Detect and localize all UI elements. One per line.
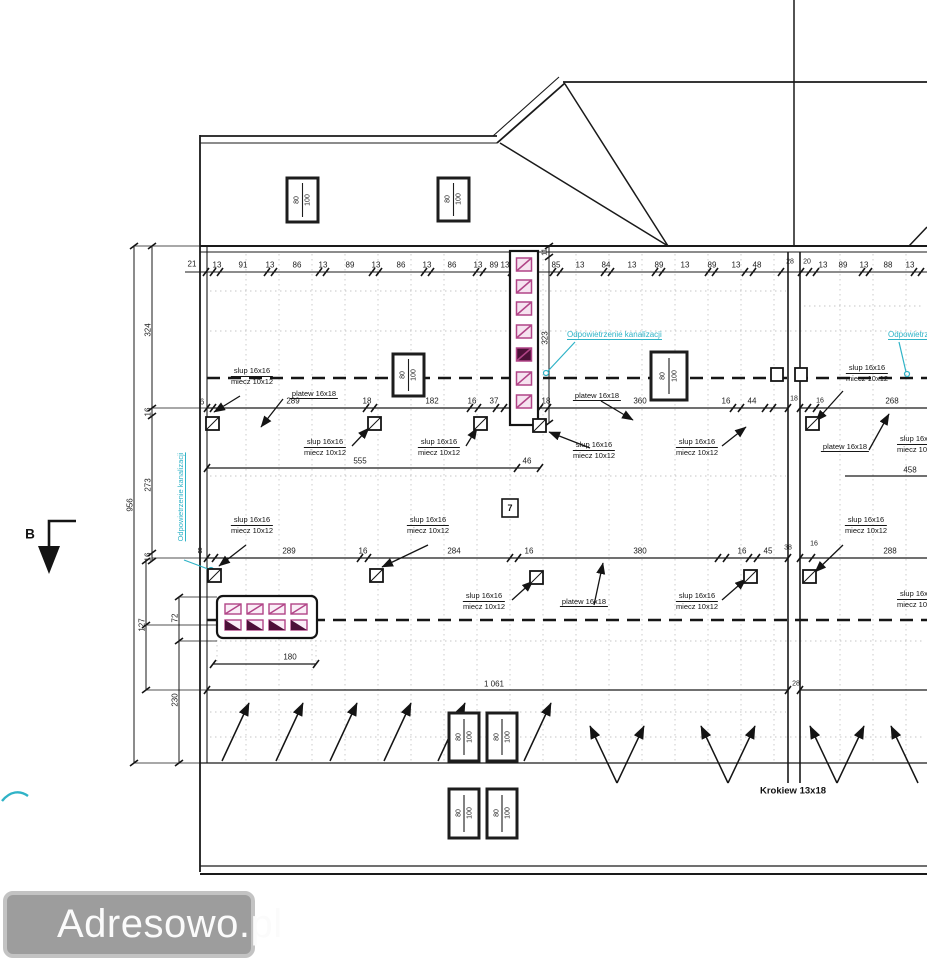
dim-text: 323 [541,331,550,344]
dim-text: 20 [803,259,811,266]
dim-text: 16 [816,398,824,405]
dim-text: 956 [126,498,135,511]
dim-text: 86 [448,261,457,270]
rafter-arrows [222,703,918,783]
dim-text: 13 [628,261,637,270]
detail-number: 7 [507,503,512,513]
dim-text: 38 [784,545,792,552]
window-size-label: 80 [294,196,301,204]
slup-miecz-label: slup 16x16miecz 10x12 [463,591,505,611]
flue-vents [517,258,532,408]
dim-text: 324 [144,323,153,336]
dim-text: 360 [633,397,646,406]
dim-text: 16 [722,397,731,406]
window-size-label: 80 [456,809,463,817]
dim-text: 45 [764,547,773,556]
dim-text: 18 [363,397,372,406]
dim-text: 1 061 [484,680,504,689]
dim-text: 268 [885,397,898,406]
dim-text: 380 [633,547,646,556]
window-size-label: 100 [467,731,474,743]
dim-text: 18 [542,397,551,406]
dim-text: 13 [372,261,381,270]
window-size-label: 100 [305,194,312,206]
slup-miecz-label: slup 16x16miecz 10x12 [845,515,887,535]
dim-text: 13 [319,261,328,270]
dim-text: 86 [293,261,302,270]
dim-text: 13 [474,261,483,270]
dim-text: 11 [542,248,549,255]
dim-text: 13 [681,261,690,270]
dim-text: 72 [171,614,180,623]
vent-label: Odpowietrzenie kanalizacji [567,330,662,340]
dim-text: 85 [552,261,561,270]
window-size-label: 100 [411,369,418,381]
window-size-label: 100 [467,807,474,819]
dim-text: 13 [213,261,222,270]
window-size-label: 80 [445,195,452,203]
dim-text: 13 [501,261,510,270]
dim-text: 180 [283,653,296,662]
slup-miecz-label: slup 16x16miecz 10x12 [418,437,460,457]
dim-text: 458 [903,466,916,475]
plan-linework [0,0,927,960]
dim-text: 13 [819,261,828,270]
skylight-boxes [287,178,687,838]
slup-miecz-label: slup 16x16miecz 10x12 [676,437,718,457]
platew-label: platew 16x18 [573,391,621,401]
dim-text: 273 [144,478,153,491]
dim-text: 288 [883,547,896,556]
dim-text: 16 [144,408,153,417]
dim-text: 13 [423,261,432,270]
slup-miecz-label: slup 16x16miecz 10x12 [231,366,273,386]
window-size-label: 100 [505,807,512,819]
vent-label: Odpowietrzenie kanalizacji [176,453,186,542]
dim-text: 16 [144,553,153,562]
purlin-dashed-lines [207,378,927,620]
watermark-text: Adresowo.pl [57,902,283,947]
vent-box-group [217,596,317,638]
slup-miecz-label: slup 16x16miecz 10x12 [231,515,273,535]
slup-miecz-label: slup 16x16miecz 10x12 [304,437,346,457]
window-size-label: 80 [400,371,407,379]
krokiew-label: Krokiew 13x18 [760,786,826,797]
dim-text: 16 [468,397,477,406]
slup-miecz-label: slup 16x16miecz 10x12 [897,589,927,609]
dim-text: 88 [884,261,893,270]
dim-text: 16 [525,547,534,556]
platew-label: platew 16x18 [560,597,608,607]
dim-text: 18 [790,396,798,403]
section-b-label: B [25,527,35,542]
dim-text: 182 [425,397,438,406]
dim-text: 13 [266,261,275,270]
dim-text: 13 [906,261,915,270]
dim-text: 86 [397,261,406,270]
dim-text: 16 [738,547,747,556]
window-size-label: 100 [672,370,679,382]
dim-text: 8 [198,547,202,556]
dim-text: 37 [490,397,499,406]
roof-framing-plan: 21 13 91 13 86 13 89 13 86 13 86 13 89 1… [0,0,927,960]
dim-text: 28 [786,259,794,266]
window-size-label: 100 [505,731,512,743]
section-b-arrow [38,521,76,574]
slup-miecz-label: slup 16x16miecz 10x12 [897,434,927,454]
window-size-label: 80 [494,809,501,817]
dim-text: 89 [839,261,848,270]
window-size-label: 80 [494,733,501,741]
chimney [510,251,538,425]
dim-text: 84 [602,261,611,270]
window-size-label: 80 [660,372,667,380]
dim-text: 89 [708,261,717,270]
window-size-label: 100 [456,193,463,205]
slup-miecz-label: slup 16x16miecz 10x12 [573,440,615,460]
dim-text: 284 [447,547,460,556]
platew-label: platew 16x18 [821,442,869,452]
window-size-label: 80 [456,733,463,741]
dim-text: 28 [792,681,800,688]
dim-text: 21 [188,260,197,269]
dim-text: 44 [748,397,757,406]
watermark: Adresowo.pl [3,891,255,958]
slup-miecz-label: slup 16x16miecz 10x12 [407,515,449,535]
dim-text: 46 [523,457,532,466]
dim-text: 91 [239,261,248,270]
dim-text: 555 [353,457,366,466]
dim-text: 6 [200,398,204,407]
dim-text: 13 [860,261,869,270]
dim-text: 13 [576,261,585,270]
vent-label: Odpowietrzenie kanalizacji [888,330,927,340]
dim-text: 13 [732,261,741,270]
dim-text: 289 [282,547,295,556]
slup-miecz-label: slup 16x16miecz 10x12 [846,363,888,383]
dim-text: 127 [138,618,147,631]
slup-miecz-label: slup 16x16miecz 10x12 [676,591,718,611]
dim-text: 89 [490,261,499,270]
dim-text: 230 [171,693,180,706]
dim-text: 89 [655,261,664,270]
dim-text: 16 [359,547,368,556]
platew-label: platew 16x18 [290,389,338,399]
dim-text: 89 [346,261,355,270]
dim-text: 48 [753,261,762,270]
dim-text: 16 [810,541,818,548]
cyan-scribble [2,792,28,801]
